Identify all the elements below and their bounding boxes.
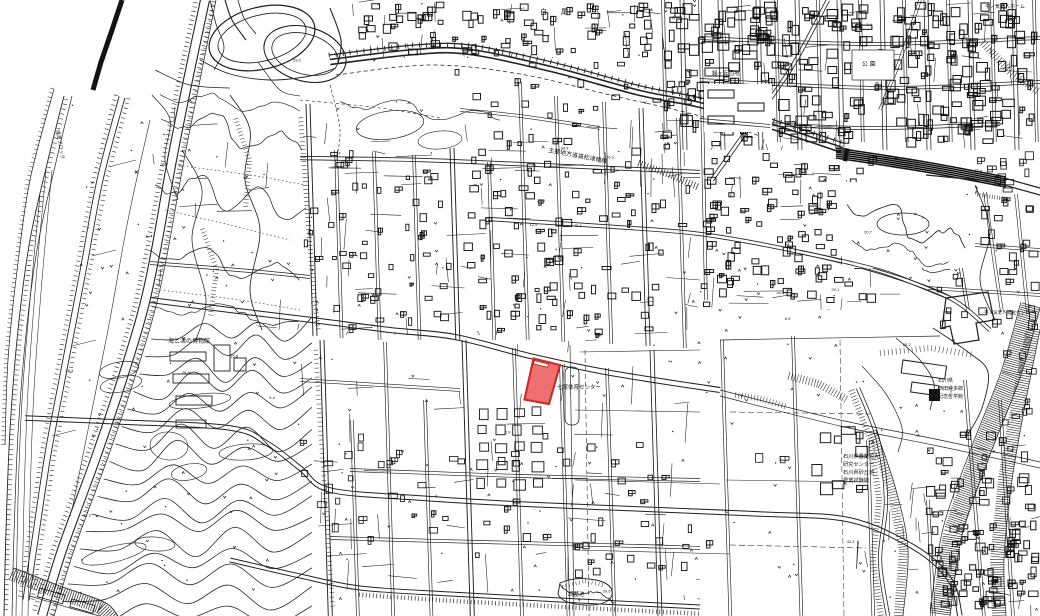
svg-text:平ノ気老人ホーム: 平ノ気老人ホーム	[985, 3, 1025, 10]
svg-text:研究センター: 研究センター	[843, 460, 874, 468]
svg-text:白 尾: 白 尾	[540, 7, 574, 16]
svg-text:石川県: 石川県	[938, 378, 953, 384]
svg-text:36.1: 36.1	[875, 81, 884, 86]
svg-text:34.9: 34.9	[561, 146, 570, 151]
svg-text:西田幾多郎: 西田幾多郎	[938, 385, 963, 392]
svg-text:42.3: 42.3	[847, 539, 856, 544]
svg-text:29.2: 29.2	[293, 57, 302, 62]
svg-text:43.4: 43.4	[574, 223, 583, 228]
svg-text:29.5: 29.5	[603, 589, 612, 594]
svg-text:七尾体育センター: 七尾体育センター	[557, 383, 601, 391]
svg-text:26.3: 26.3	[606, 154, 615, 159]
svg-text:36.2: 36.2	[160, 162, 169, 167]
svg-text:11.3: 11.3	[623, 85, 631, 90]
svg-text:緑ヶ丘団地: 緑ヶ丘団地	[712, 69, 740, 77]
svg-text:2.9: 2.9	[505, 430, 511, 435]
svg-text:44.8: 44.8	[776, 290, 785, 295]
svg-text:2.4: 2.4	[866, 22, 872, 27]
svg-text:29.1: 29.1	[831, 287, 840, 292]
svg-text:28.8: 28.8	[182, 370, 191, 375]
svg-text:平ノ気老人福祉センター: 平ノ気老人福祉センター	[984, 309, 1035, 316]
svg-text:公 園: 公 園	[862, 61, 876, 68]
svg-text:石川県砂丘地: 石川県砂丘地	[843, 468, 874, 476]
svg-text:農業試験場: 農業試験場	[843, 476, 869, 484]
svg-text:20.7: 20.7	[864, 230, 873, 235]
svg-text:海と渚の博物館: 海と渚の博物館	[168, 337, 210, 345]
svg-text:記念哲学館: 記念哲学館	[938, 393, 963, 400]
svg-text:23.9: 23.9	[331, 164, 340, 169]
svg-text:28.2: 28.2	[903, 342, 912, 347]
svg-text:5.4: 5.4	[269, 395, 275, 400]
svg-text:27.8: 27.8	[537, 198, 546, 203]
svg-text:6.9: 6.9	[785, 316, 791, 321]
svg-text:15.8: 15.8	[230, 354, 239, 359]
svg-text:石川県農業短大: 石川県農業短大	[843, 452, 879, 460]
svg-text:13.4: 13.4	[974, 168, 983, 173]
svg-text:31.2: 31.2	[83, 513, 92, 518]
svg-text:28.4: 28.4	[66, 368, 75, 373]
svg-text:12.9: 12.9	[530, 222, 539, 227]
svg-text:調整池: 調整池	[568, 590, 585, 598]
